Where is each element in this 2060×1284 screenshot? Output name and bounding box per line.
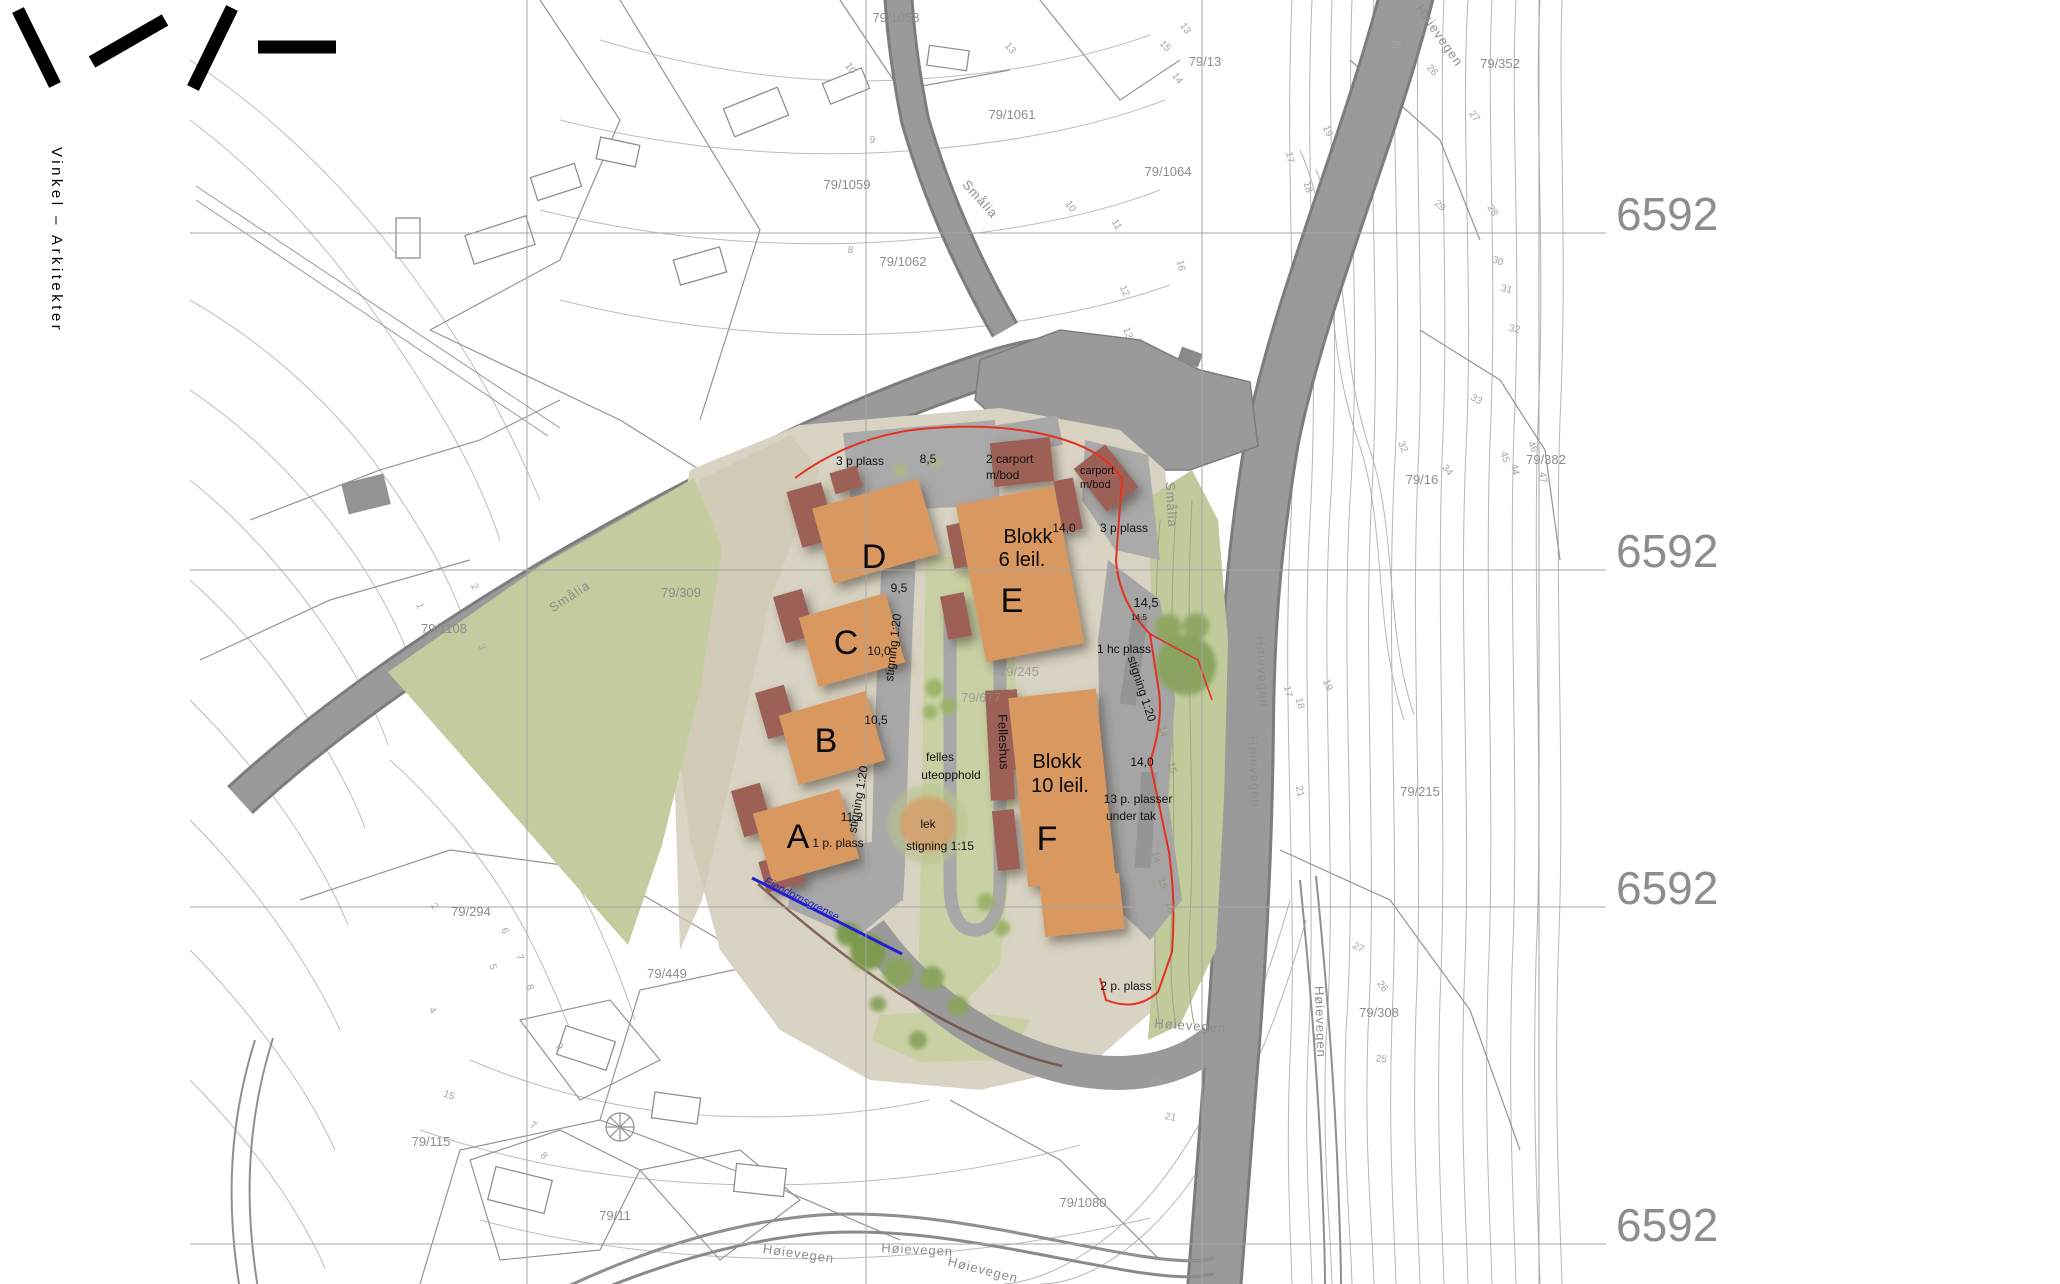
level-note: 14,0 (1130, 755, 1154, 769)
road-name: Høievegen (762, 1241, 835, 1266)
brand-block: Vinkel – Arkitekter (18, 8, 336, 333)
parking-note: 3 p plass (836, 454, 884, 468)
compass-mark (606, 1113, 634, 1141)
parcel-label: 79/352 (1480, 56, 1520, 71)
road-name: Smålia (959, 177, 1001, 221)
contour-label: 33 (1469, 392, 1484, 407)
parcel-label: 79/309 (661, 585, 701, 600)
old-road (1316, 876, 1341, 1284)
level-note: 10,5 (864, 713, 888, 727)
contour-label: 5 (486, 962, 498, 972)
contour-label: 16 (1174, 259, 1187, 272)
contour-label: 21 (1164, 1111, 1178, 1124)
contour-label: 26 (1374, 979, 1390, 995)
common-area-note: uteopphold (921, 768, 980, 782)
parcel-label: 79/245 (999, 664, 1039, 679)
width-note: 8,5 (920, 452, 937, 466)
contour-label: 19 (1320, 678, 1335, 693)
contour-label: 27 (1351, 940, 1366, 955)
parcel-label: 79/1058 (873, 10, 920, 25)
contour-label: 25 (1375, 1053, 1388, 1066)
contour-label: 18 (1301, 180, 1315, 194)
parking-note: 1 p. plass (812, 836, 863, 850)
contour-label: 29 (1432, 198, 1448, 214)
contour-label: 12 (1117, 284, 1132, 299)
contour-label: 7 (513, 953, 525, 962)
vinkel-logo-icon (18, 8, 336, 88)
building-letter-F: F (1037, 820, 1058, 858)
block-10-label: 10 leil. (1031, 775, 1089, 797)
coordinate-label: 6592 (1616, 525, 1718, 577)
parcel-label: 79/16 (1406, 472, 1439, 487)
contour-label: 6 (498, 926, 510, 936)
parcel-label: 79/11 (599, 1208, 631, 1223)
parking-note: 2 p. plass (1100, 979, 1151, 993)
common-area-note: felles (926, 750, 954, 764)
contour-label: 28 (1485, 203, 1500, 219)
level-note: 14,5 (1133, 595, 1158, 610)
parcel-label: 79/13 (1189, 54, 1222, 69)
contour-label: 11 (1109, 218, 1124, 233)
bottom-road (576, 1232, 1214, 1284)
carport-note: 2 carport (986, 452, 1034, 466)
parcel-label: 79/215 (1400, 784, 1440, 799)
site-plan-map: 6592 6592 6592 6592 79/1058 79/13 79/106… (0, 0, 2060, 1284)
level-note: 10,0 (867, 644, 891, 658)
building-letter-E: E (1001, 582, 1024, 620)
block-10-label: Blokk (1033, 751, 1083, 773)
parcel-label: 79/1064 (1145, 164, 1192, 179)
parcel-label: 79/677 (961, 690, 1001, 705)
contour-label: 45 (1497, 450, 1511, 464)
carport-note: m/bod (986, 468, 1019, 482)
contour-label: 1 (413, 602, 425, 611)
contour-label: 4 (426, 1005, 439, 1016)
coordinate-label: 6592 (1616, 862, 1718, 914)
contour-label: 15 (442, 1089, 457, 1103)
contour-label: 17 (1281, 685, 1294, 699)
building-letter-C: C (834, 624, 859, 662)
parcel-label: 79/382 (1526, 452, 1566, 467)
contour-label: 13 (1002, 41, 1018, 57)
building-letter-A: A (787, 818, 810, 856)
contour-label: 8 (538, 1150, 550, 1162)
contour-label: 47 (1536, 471, 1549, 484)
contour-label: 44 (1508, 463, 1521, 477)
lawn-west (388, 478, 722, 945)
building-letter-B: B (815, 722, 838, 760)
contour-label: 25 (1390, 39, 1403, 52)
contour-label: 26 (1424, 63, 1440, 79)
contour-label: 17 (1283, 151, 1296, 165)
contour-label: 10 (1062, 199, 1078, 215)
contour-label: 7 (528, 1120, 538, 1133)
play-area-note: lek (920, 817, 936, 831)
carport-note: carport (1080, 465, 1114, 477)
contour-label: 8 (523, 983, 535, 992)
block-6-label: 6 leil. (999, 549, 1046, 571)
parcel-label: 79/1080 (1060, 1195, 1107, 1210)
parking-note: 3 p plass (1100, 521, 1148, 535)
parking-note: under tak (1106, 809, 1157, 823)
coordinate-label: 6592 (1616, 188, 1718, 240)
contour-label: 9 (869, 135, 876, 147)
parcel-label: 79/1061 (989, 107, 1036, 122)
contour-label: 8 (847, 245, 854, 257)
building-letter-D: D (862, 538, 887, 576)
slope-note: stigning 1:15 (906, 839, 974, 853)
contour-label: 20 (1149, 1075, 1162, 1088)
contour-label: 13 (1177, 21, 1193, 37)
contour-label: 31 (1500, 283, 1514, 296)
parcel-label: 79/294 (451, 904, 491, 919)
parcel-label: 79/1062 (880, 254, 927, 269)
hc-parking-note: 1 hc plass (1097, 642, 1151, 656)
road-name: Høievegen (946, 1254, 1019, 1284)
contour-label: 19 (1320, 124, 1335, 139)
level-note: 9,5 (891, 581, 908, 595)
contour-label: 18 (1293, 697, 1306, 711)
parcel-label: 79/1108 (421, 621, 467, 636)
parcel-label: 79/115 (412, 1134, 451, 1149)
parcel-label: 79/308 (1359, 1005, 1399, 1020)
contour-label: 32 (1508, 323, 1522, 336)
contour-label: 2 (428, 901, 441, 912)
block-6-label: Blokk (1004, 526, 1054, 548)
carport-note: m/bod (1080, 479, 1111, 491)
road-name: Smålia (1163, 482, 1180, 528)
coordinate-labels: 6592 6592 6592 6592 (1616, 188, 1718, 1251)
contour-label: 32 (1395, 440, 1410, 455)
contour-label: 21 (1293, 785, 1306, 799)
level-note-small: 14,5 (1131, 613, 1147, 622)
contour-label: 15 (1157, 38, 1173, 54)
parcel-label: 79/1059 (824, 177, 871, 192)
contour-label: 14 (1169, 71, 1185, 87)
contour-label: 2 (468, 582, 481, 592)
parking-note: 13 p. plasser (1104, 792, 1173, 806)
studio-name-vertical: Vinkel – Arkitekter (48, 147, 65, 333)
coordinate-label: 6592 (1616, 1199, 1718, 1251)
road-name: Høievegen (1312, 986, 1329, 1058)
contour-label: 27 (1466, 109, 1482, 125)
parcel-label: 79/449 (647, 966, 687, 981)
felleshus-label: Felleshus (995, 714, 1012, 771)
site-plan-sheet: 6592 6592 6592 6592 79/1058 79/13 79/106… (0, 0, 2060, 1284)
level-note: 14,0 (1052, 521, 1076, 535)
level-note: 11,2 (841, 810, 864, 824)
